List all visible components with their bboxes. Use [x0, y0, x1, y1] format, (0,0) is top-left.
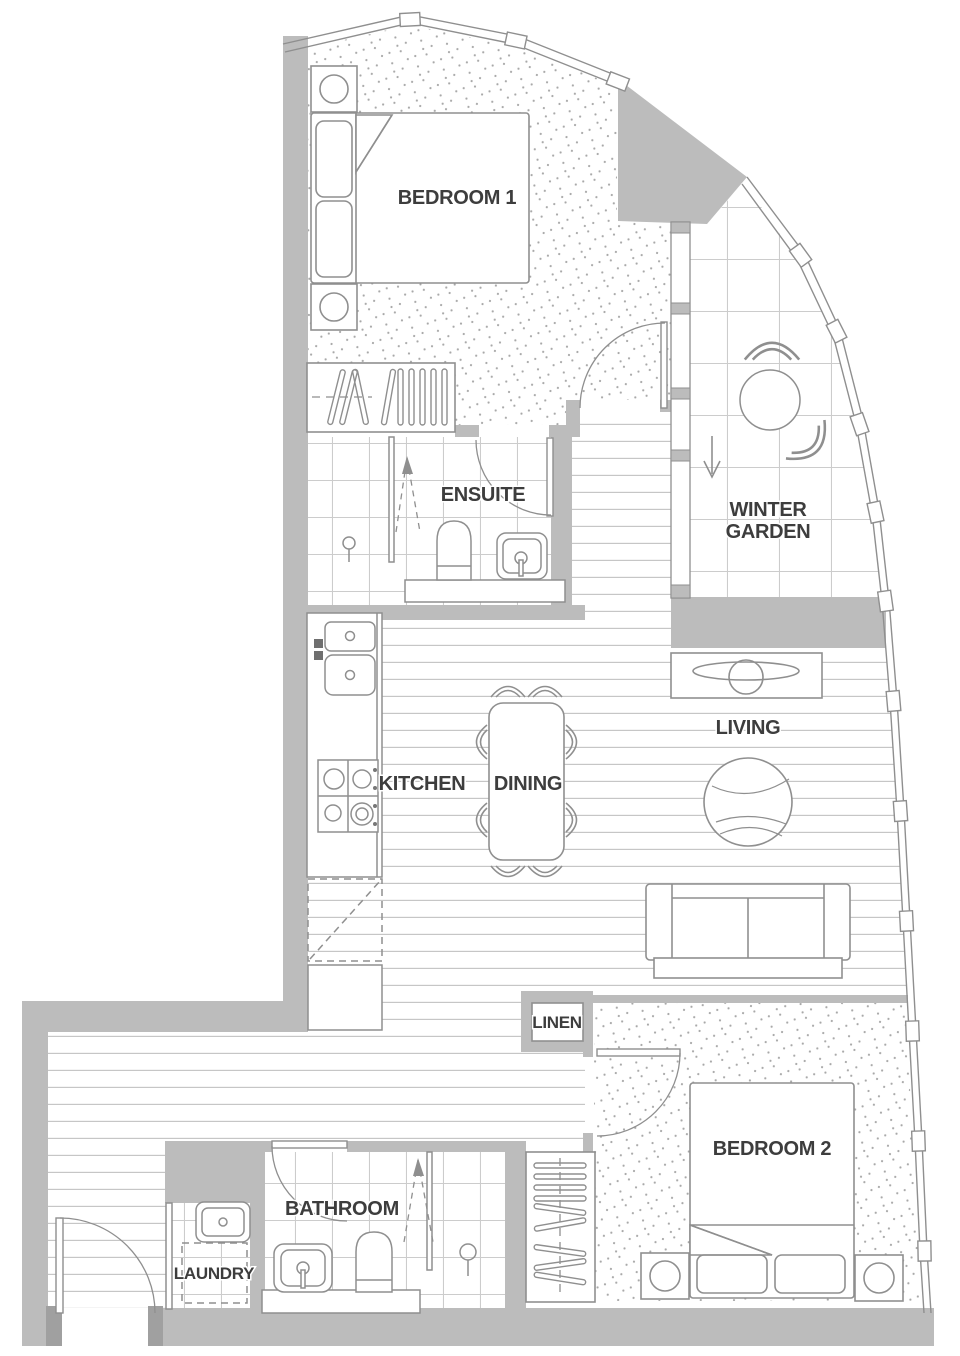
bathroom-label: BATHROOM	[285, 1198, 399, 1220]
wall-hall-west	[22, 1001, 48, 1345]
passage-floorboards	[382, 997, 523, 1037]
wall-linen-bottom	[521, 1041, 593, 1052]
sofa	[646, 884, 850, 978]
ensuite-sink	[497, 533, 547, 579]
living-label: LIVING	[716, 717, 781, 739]
wall-laundry-block	[165, 1141, 257, 1203]
bathroom-shower-screen	[427, 1152, 432, 1270]
bathroom-sink	[274, 1244, 332, 1292]
bedside-table-4	[855, 1255, 903, 1301]
wall-bedroom2-west-a	[583, 1043, 593, 1057]
floor-plan: BEDROOM 1 ENSUITE WINTER GARDEN KITCHEN …	[0, 0, 960, 1356]
wardrobe-1	[307, 363, 455, 432]
rug	[704, 758, 792, 846]
laundry-west-partition	[166, 1203, 172, 1309]
wall-bedroom2-north	[583, 995, 908, 1003]
bedroom1-label: BEDROOM 1	[398, 187, 517, 209]
linen-label: LINEN	[532, 1013, 582, 1032]
kitchen-cooktop	[318, 760, 378, 832]
wall-bathroom-east	[505, 1141, 526, 1309]
wall-wintergarden-south	[671, 597, 886, 648]
wall-stub-3	[566, 400, 580, 437]
winter-garden-label-line1: WINTER	[729, 499, 807, 521]
entry-floorboards	[48, 1143, 166, 1309]
dining-label: DINING	[494, 773, 562, 795]
wall-stub-1	[455, 425, 479, 437]
tv-cabinet	[671, 653, 822, 698]
bed-2	[690, 1083, 854, 1298]
laundry-label: LAUNDRY	[174, 1264, 255, 1283]
bedroom2-label: BEDROOM 2	[713, 1138, 832, 1160]
bedside-table-2	[311, 284, 357, 330]
kitchen-fixtures	[307, 613, 382, 1030]
bedside-table-1	[311, 66, 357, 112]
corridor-floorboards	[48, 1032, 585, 1143]
wall-bathroom-north-a	[250, 1141, 272, 1152]
kitchen-pantry	[308, 965, 382, 1030]
ensuite-vanity	[405, 580, 565, 602]
kitchen-label: KITCHEN	[379, 773, 466, 795]
floor-plan-page: BEDROOM 1 ENSUITE WINTER GARDEN KITCHEN …	[0, 0, 960, 1356]
laundry-sink	[196, 1202, 250, 1242]
bedside-table-3	[641, 1253, 689, 1299]
wall-bathroom-west	[250, 1141, 265, 1309]
entry-opening	[62, 1308, 148, 1346]
winter-garden-label-line2: GARDEN	[726, 521, 811, 543]
garden-table	[740, 370, 800, 430]
wall-west	[283, 36, 308, 1032]
wall-bathroom-north-b	[347, 1141, 520, 1152]
bathroom-vanity	[262, 1290, 420, 1313]
wall-bedroom2-west-b	[583, 1133, 593, 1152]
ensuite-label: ENSUITE	[441, 484, 526, 506]
bathroom-toilet	[356, 1232, 392, 1292]
ensuite-toilet	[437, 521, 471, 580]
wardrobe-2	[526, 1152, 595, 1302]
ensuite-shower-screen	[389, 437, 394, 562]
winter-garden-glazed-wall	[671, 222, 690, 598]
wall-hall-north	[22, 1001, 308, 1032]
